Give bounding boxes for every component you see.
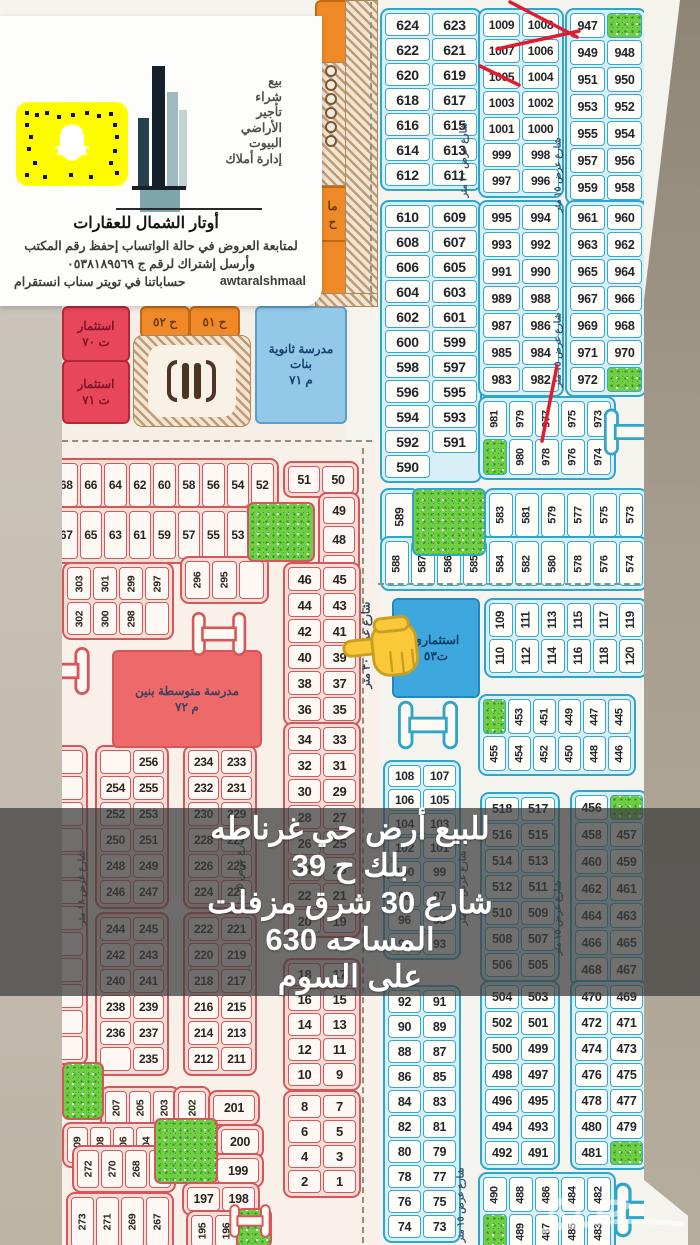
plot-118: 118 bbox=[593, 639, 617, 673]
plot-row: 608607 bbox=[384, 229, 478, 254]
park-cell bbox=[483, 699, 506, 734]
hatched-area bbox=[345, 0, 378, 306]
plot-200: 200 bbox=[221, 1129, 259, 1154]
plot-61: 61 bbox=[129, 511, 152, 559]
caption-line-5: على السوم bbox=[0, 958, 700, 995]
plot-10: 10 bbox=[288, 1063, 321, 1086]
plot-33: 33 bbox=[323, 727, 356, 751]
plot-row: 594593 bbox=[384, 404, 478, 429]
plot-row: 3029 bbox=[287, 778, 357, 804]
invest-71-label: استثمار bbox=[77, 377, 114, 392]
plot-195: 195 bbox=[191, 1215, 213, 1245]
plot-495: 495 bbox=[521, 1089, 555, 1113]
plot-77: 77 bbox=[423, 1165, 456, 1188]
park-green-area bbox=[412, 488, 486, 556]
plot-row: 8483 bbox=[387, 1089, 457, 1114]
plot-296: 296 bbox=[185, 561, 210, 599]
plot-row: 87 bbox=[287, 1094, 357, 1119]
plot-108: 108 bbox=[388, 765, 421, 787]
park-cell bbox=[239, 561, 264, 599]
plot-612: 612 bbox=[385, 163, 430, 186]
plot-602: 602 bbox=[385, 305, 430, 328]
plot-599: 599 bbox=[432, 330, 477, 353]
plot-955: 955 bbox=[570, 121, 605, 146]
plot-62: 62 bbox=[129, 463, 152, 507]
plot-113: 113 bbox=[541, 603, 565, 637]
plot-573: 573 bbox=[619, 493, 643, 537]
brand-social-line: awtaralshmaal حساباتنا في تويتر سناب انس… bbox=[4, 274, 316, 289]
plot-row: 10071006 bbox=[482, 38, 560, 64]
plot-301: 301 bbox=[93, 567, 117, 600]
plot-212: 212 bbox=[188, 1047, 219, 1071]
service-item-2: شراء bbox=[186, 90, 282, 106]
park-cell bbox=[100, 750, 131, 774]
plot-112: 112 bbox=[515, 639, 539, 673]
plot-492: 492 bbox=[485, 1141, 519, 1165]
plot-78: 78 bbox=[388, 1165, 421, 1188]
plot-57: 57 bbox=[178, 511, 201, 559]
plot-row: 496495 bbox=[484, 1088, 556, 1114]
plot-960: 960 bbox=[607, 205, 642, 230]
plot-114: 114 bbox=[541, 639, 565, 673]
plot-267: 267 bbox=[146, 1197, 169, 1245]
deco-circle bbox=[325, 121, 337, 133]
plot-45: 45 bbox=[323, 567, 356, 591]
park-cell bbox=[610, 1141, 643, 1165]
plot-197: 197 bbox=[187, 1187, 220, 1211]
plot-row: 955954 bbox=[569, 120, 643, 147]
park-cell bbox=[607, 13, 642, 38]
plot-55: 55 bbox=[202, 511, 225, 559]
plot-490: 490 bbox=[483, 1177, 507, 1212]
plot-211: 211 bbox=[221, 1047, 252, 1071]
plot-605: 605 bbox=[432, 255, 477, 278]
pillar-bracket bbox=[167, 360, 177, 402]
plot-976: 976 bbox=[561, 439, 585, 475]
plot-972: 972 bbox=[570, 367, 605, 392]
plot-452: 452 bbox=[533, 736, 556, 771]
road-shape bbox=[190, 610, 248, 658]
invest-71-number: ت ٧١ bbox=[82, 392, 110, 408]
plot-965: 965 bbox=[570, 259, 605, 284]
plot-row: 234233 bbox=[187, 749, 253, 775]
plot-450: 450 bbox=[558, 736, 581, 771]
plot-row: 199 bbox=[216, 1157, 260, 1184]
plot-451: 451 bbox=[533, 699, 556, 734]
plot-row: 961960 bbox=[569, 204, 643, 231]
plot-295: 295 bbox=[212, 561, 237, 599]
haraj-watermark: حراج bbox=[545, 1178, 633, 1227]
pillar bbox=[182, 363, 189, 399]
plot-row: 592591 bbox=[384, 429, 478, 454]
plot-row: 273271269267 bbox=[70, 1196, 170, 1245]
plot-block: 583581579577575573 bbox=[484, 488, 648, 542]
plot-65: 65 bbox=[80, 511, 103, 559]
plot-601: 601 bbox=[432, 305, 477, 328]
plot-row: 995994 bbox=[482, 204, 560, 231]
plot-471: 471 bbox=[610, 1011, 643, 1035]
plot-501: 501 bbox=[521, 1011, 555, 1035]
plot-row: 989988 bbox=[482, 285, 560, 312]
plot-row: 492491 bbox=[484, 1140, 556, 1166]
plot-991: 991 bbox=[483, 259, 520, 284]
plot-476: 476 bbox=[575, 1063, 608, 1087]
plot-row: 991990 bbox=[482, 258, 560, 285]
plot-579: 579 bbox=[541, 493, 565, 537]
plot-row: 109111113115117119 bbox=[488, 602, 644, 638]
left-background-strip bbox=[0, 296, 62, 1245]
plot-234: 234 bbox=[188, 750, 219, 774]
street-dashed-line bbox=[378, 583, 640, 585]
plot-577: 577 bbox=[567, 493, 591, 537]
plot-474: 474 bbox=[575, 1037, 608, 1061]
plot-256: 256 bbox=[133, 750, 164, 774]
plot-block: 9959949939929919909899889879869859849839… bbox=[478, 200, 564, 397]
block-h52-label: ح ٥٢ bbox=[153, 315, 177, 330]
invest-70-number: ت ٧٠ bbox=[82, 334, 110, 350]
plot-row: 303301299297 bbox=[66, 566, 170, 601]
plot-448: 448 bbox=[583, 736, 606, 771]
mosque-courtyard bbox=[148, 345, 236, 417]
plot-961: 961 bbox=[570, 205, 605, 230]
plot-297: 297 bbox=[145, 567, 169, 600]
plot-row: 620619 bbox=[384, 62, 478, 87]
park-green-area bbox=[62, 1062, 104, 1120]
plot-row: 957956 bbox=[569, 147, 643, 174]
plot-969: 969 bbox=[570, 313, 605, 338]
plot-row: 598597 bbox=[384, 354, 478, 379]
plot-117: 117 bbox=[593, 603, 617, 637]
plot-499: 499 bbox=[521, 1037, 555, 1061]
plot-82: 82 bbox=[388, 1115, 421, 1138]
road-shape bbox=[228, 1198, 272, 1244]
plot-row: 980978976974 bbox=[482, 438, 612, 476]
plot-995: 995 bbox=[483, 205, 520, 230]
plot-54: 54 bbox=[227, 463, 250, 507]
plot-951: 951 bbox=[570, 67, 605, 92]
plot-111: 111 bbox=[515, 603, 539, 637]
plot-236: 236 bbox=[100, 1021, 131, 1045]
pointing-finger-icon bbox=[338, 608, 431, 689]
plot-block: 296295 bbox=[180, 556, 269, 604]
pillar-bracket bbox=[206, 360, 216, 402]
plot-36: 36 bbox=[288, 697, 321, 721]
plot-473: 473 bbox=[610, 1037, 643, 1061]
plot-623: 623 bbox=[432, 13, 477, 36]
plot-row: 109 bbox=[287, 1062, 357, 1087]
plot-88: 88 bbox=[388, 1040, 421, 1063]
plot-row: 110112114116118120 bbox=[488, 638, 644, 674]
park-cell bbox=[145, 602, 169, 635]
plot-row: 453451449447445 bbox=[482, 698, 632, 735]
plot-273: 273 bbox=[71, 1197, 94, 1245]
boys-school-72: مدرسة متوسطة بنينم ٧٢ bbox=[112, 650, 262, 748]
plot-967: 967 bbox=[570, 286, 605, 311]
boys-school-72-number: م ٧٢ bbox=[175, 699, 199, 715]
plot-978: 978 bbox=[535, 439, 559, 475]
plot-64: 64 bbox=[104, 463, 127, 507]
plot-298: 298 bbox=[119, 602, 143, 635]
plot-35: 35 bbox=[323, 697, 356, 721]
brand-line-2: وأرسل إشتراك لرقم ج ٠٥٣٨١٨٩٥٦٩ bbox=[4, 256, 318, 271]
deco-circle bbox=[325, 107, 337, 119]
plot-11: 11 bbox=[323, 1038, 356, 1061]
plot-619: 619 bbox=[432, 63, 477, 86]
plot-216: 216 bbox=[188, 995, 219, 1019]
plot-row: 10031002 bbox=[482, 90, 560, 116]
girls-school-71: مدرسة ثانوية بناتم ٧١ bbox=[255, 306, 347, 424]
plot-row: 981979977975973 bbox=[482, 400, 612, 438]
plot-6: 6 bbox=[288, 1120, 321, 1143]
plot-600: 600 bbox=[385, 330, 430, 353]
plot-478: 478 bbox=[575, 1089, 608, 1113]
plot-574: 574 bbox=[619, 541, 643, 586]
plot-4: 4 bbox=[288, 1145, 321, 1168]
service-item-1: بيع bbox=[186, 74, 282, 90]
plot-983: 983 bbox=[483, 367, 520, 392]
plot-row: 43 bbox=[287, 1144, 357, 1169]
plot-row: 481 bbox=[574, 1140, 644, 1166]
plot-row: 999998 bbox=[482, 142, 560, 168]
plot-109: 109 bbox=[489, 603, 513, 637]
services-list: بيعشراءتأجيرالأراضيالبيوتإدارة أملاك bbox=[186, 74, 282, 167]
plot-582: 582 bbox=[515, 541, 539, 586]
plot-7: 7 bbox=[323, 1095, 356, 1118]
plot-213: 213 bbox=[221, 1021, 252, 1045]
plot-255: 255 bbox=[133, 776, 164, 800]
plot-207: 207 bbox=[105, 1091, 127, 1125]
plot-block: 453451449447445455454452450448446 bbox=[478, 694, 636, 776]
plot-611: 611 bbox=[432, 163, 477, 186]
plot-271: 271 bbox=[96, 1197, 119, 1245]
plot-603: 603 bbox=[432, 280, 477, 303]
plot-row: 455454452450448446 bbox=[482, 735, 632, 772]
plot-row: 3231 bbox=[287, 752, 357, 778]
plot-row: 610609 bbox=[384, 204, 478, 229]
plot-199: 199 bbox=[217, 1158, 259, 1183]
plot-block: 87654321 bbox=[283, 1090, 361, 1198]
plot-477: 477 bbox=[610, 1089, 643, 1113]
plot-row: 65 bbox=[287, 1119, 357, 1144]
plot-row: 7675 bbox=[387, 1189, 457, 1214]
plot-30: 30 bbox=[288, 779, 321, 803]
plot-615: 615 bbox=[432, 113, 477, 136]
plot-472: 472 bbox=[575, 1011, 608, 1035]
plot-950: 950 bbox=[607, 67, 642, 92]
plot-row: 953952 bbox=[569, 93, 643, 120]
plot-row: 7877 bbox=[387, 1164, 457, 1189]
plot-row: 8281 bbox=[387, 1114, 457, 1139]
plot-row: 618617 bbox=[384, 87, 478, 112]
plot-row: 997996 bbox=[482, 168, 560, 194]
plot-947: 947 bbox=[570, 13, 605, 38]
plot-607: 607 bbox=[432, 230, 477, 253]
plot-row: 4645 bbox=[287, 566, 357, 592]
street-dashed-line bbox=[370, 2, 372, 302]
plot-60: 60 bbox=[153, 463, 176, 507]
plot-row: 494493 bbox=[484, 1114, 556, 1140]
block-h51: ح ٥١ bbox=[189, 306, 240, 338]
plot-489: 489 bbox=[509, 1214, 533, 1245]
plot-42: 42 bbox=[288, 619, 321, 643]
plot-row: 108107 bbox=[387, 764, 457, 788]
plot-85: 85 bbox=[423, 1065, 456, 1088]
plot-row: 480479 bbox=[574, 1114, 644, 1140]
plot-575: 575 bbox=[593, 493, 617, 537]
plot-116: 116 bbox=[567, 639, 591, 673]
plot-302: 302 bbox=[67, 602, 91, 635]
plot-row: 201 bbox=[212, 1094, 256, 1122]
plot-row: 971970 bbox=[569, 339, 643, 366]
plot-row: 500499 bbox=[484, 1036, 556, 1062]
plot-44: 44 bbox=[288, 593, 321, 617]
girls-school-71-label: مدرسة ثانوية بنات bbox=[257, 342, 345, 372]
plot-502: 502 bbox=[485, 1011, 519, 1035]
plot-231: 231 bbox=[221, 776, 252, 800]
plot-975: 975 bbox=[561, 401, 585, 437]
plot-997: 997 bbox=[483, 169, 520, 193]
plot-475: 475 bbox=[610, 1063, 643, 1087]
plot-row: 590 bbox=[384, 454, 478, 479]
plot-999: 999 bbox=[483, 143, 520, 167]
caption-line-1: للبيع أرض حي غرناطه bbox=[0, 810, 700, 847]
plot-block: 9291908988878685848382818079787776757473 bbox=[383, 985, 461, 1243]
plot-617: 617 bbox=[432, 88, 477, 111]
plot-968: 968 bbox=[607, 313, 642, 338]
plot-580: 580 bbox=[541, 541, 565, 586]
plot-120: 120 bbox=[619, 639, 643, 673]
plot-38: 38 bbox=[288, 671, 321, 695]
plot-269: 269 bbox=[121, 1197, 144, 1245]
plot-454: 454 bbox=[508, 736, 531, 771]
plot-14: 14 bbox=[288, 1013, 321, 1036]
plot-952: 952 bbox=[607, 94, 642, 119]
plot-row: 600599 bbox=[384, 329, 478, 354]
plot-3: 3 bbox=[323, 1145, 356, 1168]
plot-row: 993992 bbox=[482, 231, 560, 258]
plot-620: 620 bbox=[385, 63, 430, 86]
plot-494: 494 bbox=[485, 1115, 519, 1139]
plot-497: 497 bbox=[521, 1063, 555, 1087]
plot-589: 589 bbox=[385, 493, 415, 541]
plot-row: 4443 bbox=[287, 592, 357, 618]
park-cell bbox=[483, 439, 507, 475]
plot-588: 588 bbox=[385, 541, 409, 586]
plot-block: 686664626058565452 bbox=[50, 458, 279, 512]
plot-453: 453 bbox=[508, 699, 531, 734]
social-handle: awtaralshmaal bbox=[220, 274, 306, 289]
plot-622: 622 bbox=[385, 38, 430, 61]
agency-name: أوتار الشمال للعقارات bbox=[6, 213, 286, 233]
orange-strip-2-number: ح bbox=[329, 214, 337, 230]
plot-row: 949948 bbox=[569, 39, 643, 66]
plot-613: 613 bbox=[432, 138, 477, 161]
plot-row: 963962 bbox=[569, 231, 643, 258]
plot-89: 89 bbox=[423, 1015, 456, 1038]
brand-line-1: لمتابعة العروض في حالة الواتساب إحفظ رقم… bbox=[4, 238, 318, 253]
plot-row: 967966 bbox=[569, 285, 643, 312]
plot-496: 496 bbox=[485, 1089, 519, 1113]
plot-52: 52 bbox=[251, 463, 274, 507]
plot-107: 107 bbox=[423, 765, 456, 787]
plot-616: 616 bbox=[385, 113, 430, 136]
plot-239: 239 bbox=[133, 995, 164, 1019]
plot-block: 961960963962965964967966969968971970972 bbox=[565, 200, 647, 397]
plot-block: 5045035025015004994984974964954944934924… bbox=[480, 980, 560, 1170]
plot-row: 602601 bbox=[384, 304, 478, 329]
plot-row: 987986 bbox=[482, 312, 560, 339]
plot-row: 236237 bbox=[99, 1020, 165, 1046]
plot-595: 595 bbox=[432, 380, 477, 403]
plot-455: 455 bbox=[483, 736, 506, 771]
plot-300: 300 bbox=[93, 602, 117, 635]
plot-990: 990 bbox=[522, 259, 559, 284]
invest-70-label: استثمار bbox=[77, 319, 114, 334]
plot-447: 447 bbox=[583, 699, 606, 734]
plot-block: 470469472471474473476475478477480479481 bbox=[570, 980, 648, 1170]
plot-621: 621 bbox=[432, 38, 477, 61]
plot-83: 83 bbox=[423, 1090, 456, 1113]
plot-949: 949 bbox=[570, 40, 605, 65]
plot-76: 76 bbox=[388, 1190, 421, 1213]
plot-624: 624 bbox=[385, 13, 430, 36]
plot-614: 614 bbox=[385, 138, 430, 161]
plot-row: 3635 bbox=[287, 696, 357, 722]
plot-53: 53 bbox=[227, 511, 250, 559]
snapchat-ghost-icon bbox=[49, 121, 95, 167]
plot-604: 604 bbox=[385, 280, 430, 303]
plot-1002: 1002 bbox=[522, 91, 559, 115]
plot-205: 205 bbox=[129, 1091, 151, 1125]
plot-272: 272 bbox=[77, 1150, 99, 1188]
plot-40: 40 bbox=[288, 645, 321, 669]
plot-13: 13 bbox=[323, 1013, 356, 1036]
plot-row: 951950 bbox=[569, 66, 643, 93]
plot-598: 598 bbox=[385, 355, 430, 378]
skyscraper-logo bbox=[130, 66, 188, 216]
plot-row: 985984 bbox=[482, 339, 560, 366]
plot-479: 479 bbox=[610, 1115, 643, 1139]
plot-993: 993 bbox=[483, 232, 520, 257]
plot-row: 947 bbox=[569, 12, 643, 39]
plot-row: 8685 bbox=[387, 1064, 457, 1089]
plot-row: 238239 bbox=[99, 994, 165, 1020]
plot-row: 686664626058565452 bbox=[54, 462, 275, 508]
plot-593: 593 bbox=[432, 405, 477, 428]
plot-79: 79 bbox=[423, 1140, 456, 1163]
plot-46: 46 bbox=[288, 567, 321, 591]
plot-445: 445 bbox=[608, 699, 631, 734]
plot-606: 606 bbox=[385, 255, 430, 278]
plot-row: 965964 bbox=[569, 258, 643, 285]
plot-962: 962 bbox=[607, 232, 642, 257]
plot-498: 498 bbox=[485, 1063, 519, 1087]
plot-row: 1211 bbox=[287, 1037, 357, 1062]
plot-84: 84 bbox=[388, 1090, 421, 1113]
plot-56: 56 bbox=[202, 463, 225, 507]
listing-caption-overlay: للبيع أرض حي غرناطهبلك ح 39شارع 30 شرق م… bbox=[0, 808, 700, 996]
plot-row: 983982 bbox=[482, 366, 560, 393]
plot-964: 964 bbox=[607, 259, 642, 284]
plot-214: 214 bbox=[188, 1021, 219, 1045]
road-shape bbox=[396, 698, 460, 752]
plot-957: 957 bbox=[570, 148, 605, 173]
plot-233: 233 bbox=[221, 750, 252, 774]
service-item-6: إدارة أملاك bbox=[186, 152, 282, 168]
plot-12: 12 bbox=[288, 1038, 321, 1061]
plot-86: 86 bbox=[388, 1065, 421, 1088]
plot-row: 8887 bbox=[387, 1039, 457, 1064]
